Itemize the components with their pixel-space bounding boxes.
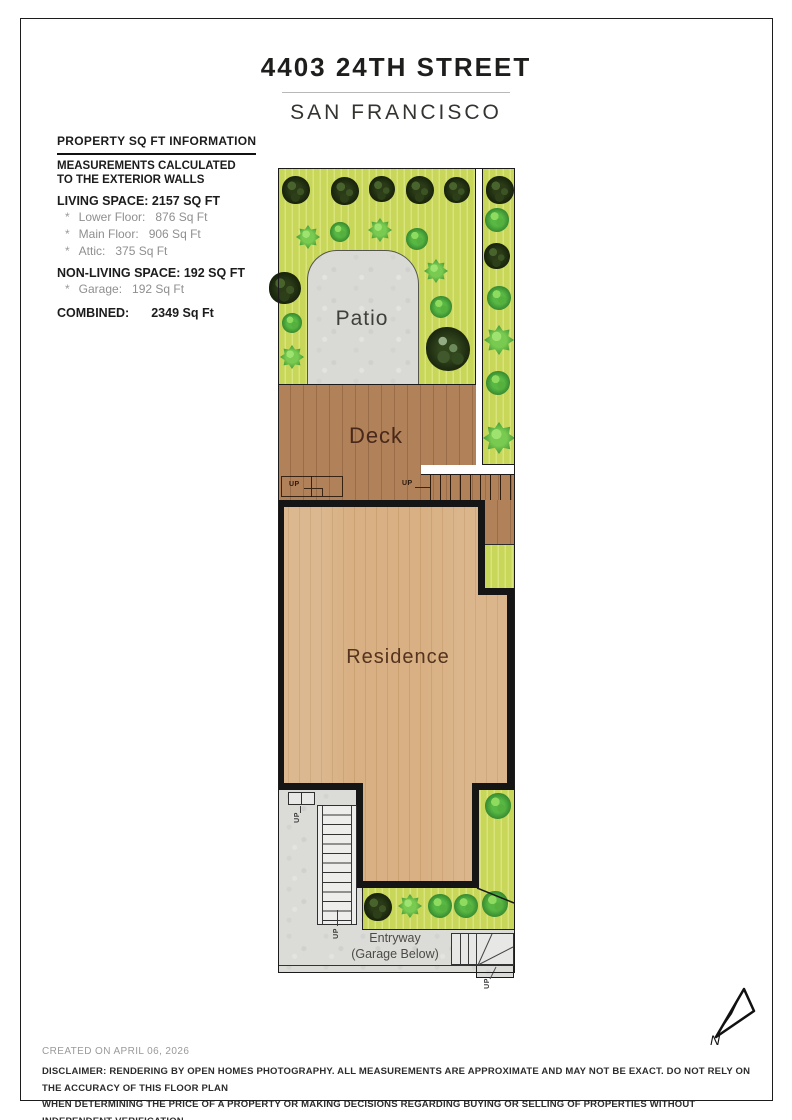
entryway-label-line2: (Garage Below) [325,947,465,963]
item-label: Lower Floor: [79,210,146,224]
bush-icon [485,208,509,232]
item-label: Attic: [79,244,106,258]
bullet: * [65,227,70,241]
bush-icon [330,222,350,242]
bush-icon [296,225,320,249]
north-label: N [710,1032,721,1047]
patio-label: Patio [322,307,402,331]
leader-line [304,488,322,489]
disclaimer-line1: DISCLAIMER: RENDERING BY OPEN HOMES PHOT… [42,1064,752,1097]
wall [278,500,284,790]
up-label-deck-left: UP [289,481,300,488]
footer: CREATED ON APRIL 06, 2026 DISCLAIMER: RE… [42,1046,752,1120]
garden-edge-line [362,888,363,930]
bush-icon [487,286,511,310]
tree-icon [282,176,310,204]
living-item-attic: *Attic:375 Sq Ft [57,244,267,259]
non-living-item-garage: *Garage:192 Sq Ft [57,282,267,297]
info-heading: PROPERTY SQ FT INFORMATION [57,134,256,155]
up-label-deck-right: UP [402,480,413,487]
info-note-line1: MEASUREMENTS CALCULATED [57,160,267,174]
living-space-heading: LIVING SPACE: 2157 SQ FT [57,194,267,208]
non-living-heading: NON-LIVING SPACE: 192 SQ FT [57,266,267,280]
leader-line [337,910,338,926]
bush-icon [482,891,508,917]
entryway-label-line1: Entryway [325,931,465,947]
winder-tread [476,933,477,965]
stair-stringer [351,806,352,924]
combined-label: COMBINED: [57,306,129,320]
deck-stair-gap [421,465,515,474]
bush-icon [485,793,511,819]
entry-landing-divider [301,792,302,805]
bullet: * [65,244,70,258]
bush-icon [454,894,478,918]
leader-line [415,487,430,488]
page-title: 4403 24TH STREET [0,52,792,83]
site-plan: UP UP UP UP [278,168,515,998]
entryway-label: Entryway (Garage Below) [325,931,465,962]
bullet: * [65,210,70,224]
living-item-main-floor: *Main Floor:906 Sq Ft [57,227,267,242]
bush-icon [406,228,428,250]
wall [278,500,485,507]
north-arrow-icon: N [698,983,768,1047]
item-value: 192 Sq Ft [132,282,184,296]
item-label: Garage: [79,282,122,296]
tree-icon [484,243,510,269]
entry-stair-treads [323,806,351,924]
tree-icon [406,176,434,204]
bush-icon [424,259,448,283]
entry-stair-bay [476,966,514,978]
bush-icon [368,218,392,242]
wall [356,783,363,888]
wall [478,500,485,595]
created-date: CREATED ON APRIL 06, 2026 [42,1046,752,1057]
item-value: 906 Sq Ft [149,227,201,241]
page-subtitle: SAN FRANCISCO [0,101,792,125]
property-info-panel: PROPERTY SQ FT INFORMATION MEASUREMENTS … [57,132,267,320]
tree-icon [444,177,470,203]
wall [278,783,363,790]
leader-line [322,488,323,497]
up-label-entry-landing: UP [294,812,301,823]
bush-icon [486,371,510,395]
side-stair-landing [485,500,515,545]
tree-icon [331,177,359,205]
wall [507,588,515,790]
bush-icon [430,296,452,318]
garden-side-patch [485,545,515,588]
tree-icon [426,327,470,371]
up-label-winder: UP [484,978,491,989]
leader-line [300,806,301,813]
deck-up-landing-divider [311,476,312,497]
bush-icon [280,345,304,369]
floor-plan-page: 4403 24TH STREET SAN FRANCISCO PROPERTY … [0,0,792,1120]
tree-icon [369,176,395,202]
deck-label: Deck [336,423,416,449]
bush-icon [282,313,302,333]
combined-total: COMBINED:2349 Sq Ft [57,306,267,320]
disclaimer-text: DISCLAIMER: RENDERING BY OPEN HOMES PHOT… [42,1064,752,1120]
bush-icon [428,894,452,918]
bush-icon [484,325,514,355]
living-item-lower-floor: *Lower Floor:876 Sq Ft [57,210,267,225]
info-note-line2: TO THE EXTERIOR WALLS [57,174,267,188]
disclaimer-line2: WHEN DETERMINING THE PRICE OF A PROPERTY… [42,1097,752,1120]
residence-label: Residence [328,646,468,669]
bullet: * [65,282,70,296]
item-value: 375 Sq Ft [115,244,167,258]
wall [472,783,479,888]
tree-icon [364,893,392,921]
tree-icon [486,176,514,204]
sidewalk-line [278,965,515,966]
title-divider [282,92,510,93]
item-value: 876 Sq Ft [155,210,207,224]
header: 4403 24TH STREET SAN FRANCISCO [0,52,792,125]
deck-stairs-treads [430,474,514,500]
combined-value: 2349 Sq Ft [151,306,214,320]
winder-tread [468,933,469,965]
wall [356,881,479,888]
item-label: Main Floor: [79,227,139,241]
tree-icon [269,272,301,304]
